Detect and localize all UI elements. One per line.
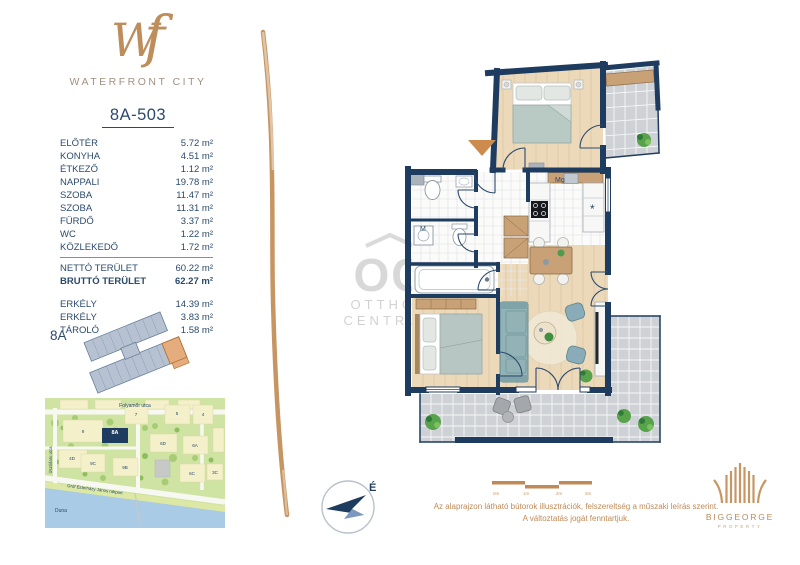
dishwasher-label: Mg xyxy=(555,177,565,184)
building-label: 8A xyxy=(50,328,67,343)
north-compass-icon: É xyxy=(318,473,382,535)
table-row: NAPPALI19.78 m² xyxy=(60,176,213,189)
map-street-top-label: Folyamőr utca xyxy=(119,403,151,409)
developer-name: BIGGEORGE xyxy=(696,512,784,522)
svg-text:9C: 9C xyxy=(90,461,97,466)
building-key-plan xyxy=(80,310,192,398)
map-street-left-label: Úszódaru utca xyxy=(48,446,53,474)
developer-sub: PROPERTY xyxy=(696,524,784,529)
washer-label: M xyxy=(420,226,426,233)
plant-balcony-col xyxy=(617,409,631,423)
svg-text:9B: 9B xyxy=(122,465,128,470)
svg-text:1m: 1m xyxy=(523,491,530,496)
table-row: ELŐTÉR5.72 m² xyxy=(60,137,213,150)
map-river-label: Duna xyxy=(55,508,67,514)
table-row: SZOBA11.31 m² xyxy=(60,202,213,215)
plant-top-balcony xyxy=(637,133,651,147)
fridge-label: * xyxy=(590,202,595,216)
biggeorge-logo: BIGGEORGE PROPERTY xyxy=(696,460,784,529)
biggeorge-crown-icon xyxy=(705,460,775,506)
site-map: Folyamőr utca Úszódaru utca 9 7 5 4 6D 6… xyxy=(45,398,225,528)
table-row: ÉTKEZŐ1.12 m² xyxy=(60,163,213,176)
svg-text:3C: 3C xyxy=(212,470,219,475)
area-table: ELŐTÉR5.72 m² KONYHA4.51 m² ÉTKEZŐ1.12 m… xyxy=(60,137,213,337)
sofa xyxy=(500,302,528,382)
svg-text:4: 4 xyxy=(202,412,205,417)
toilet-wc xyxy=(424,176,441,200)
svg-text:4D: 4D xyxy=(69,456,76,461)
svg-text:5: 5 xyxy=(176,411,179,416)
scale-bar: 0m 1m 2m 3m xyxy=(492,478,592,498)
table-row: WC1.22 m² xyxy=(60,228,213,241)
svg-text:7: 7 xyxy=(135,412,138,417)
svg-text:3m: 3m xyxy=(585,491,592,496)
north-label: É xyxy=(369,481,376,494)
svg-text:6D: 6D xyxy=(160,441,167,446)
table-row-brutto: BRUTTÓ TERÜLET62.27 m² xyxy=(60,275,213,288)
coffee-table xyxy=(534,322,556,344)
map-8a-label: 8A xyxy=(111,430,118,436)
floorplan-sheet: Wf WATERFRONT CITY 8A-503 ELŐTÉR5.72 m² … xyxy=(0,0,800,565)
svg-text:0m: 0m xyxy=(493,491,500,496)
table-row-netto: NETTÓ TERÜLET60.22 m² xyxy=(60,262,213,275)
floor-plan: Mg M * xyxy=(398,50,663,445)
brand-name: WATERFRONT CITY xyxy=(40,76,236,88)
cooktop xyxy=(531,201,548,218)
bathtub xyxy=(415,266,494,293)
brand-logo: Wf WATERFRONT CITY xyxy=(40,8,236,88)
table-row: SZOBA11.47 m² xyxy=(60,189,213,202)
unit-id: 8A-503 xyxy=(40,106,236,128)
svg-text:6C: 6C xyxy=(189,471,196,476)
bed-double-1 xyxy=(502,80,583,143)
table-row: KONYHA4.51 m² xyxy=(60,150,213,163)
orange-divider xyxy=(60,257,213,258)
decorative-curve xyxy=(240,0,300,565)
svg-text:2m: 2m xyxy=(556,491,563,496)
plant-balcony-right xyxy=(638,416,654,432)
table-row: FÜRDŐ3.37 m² xyxy=(60,215,213,228)
tv-cabinet xyxy=(595,302,606,376)
svg-text:9: 9 xyxy=(82,429,85,434)
waterfront-monogram-icon: Wf xyxy=(40,8,236,74)
table-row: KÖZLEKEDŐ1.72 m² xyxy=(60,241,213,254)
plant-balcony-left xyxy=(425,414,441,430)
kitchen-sink xyxy=(564,174,578,184)
svg-text:6A: 6A xyxy=(192,443,199,448)
